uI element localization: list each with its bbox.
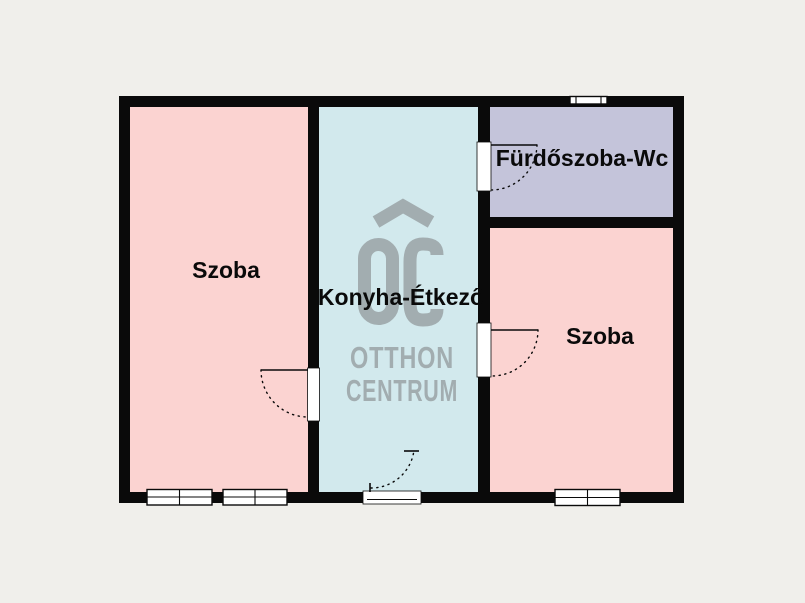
door-opening — [363, 491, 421, 504]
room-left-fill — [119, 96, 319, 503]
door-opening — [477, 323, 491, 377]
watermark-line1: OTTHON — [350, 340, 454, 375]
floorplan: OC OTTHON CENTRUM — [0, 0, 805, 603]
room-label-left-szoba: Szoba — [192, 257, 260, 283]
watermark-line2: CENTRUM — [346, 373, 458, 408]
window-left-2 — [223, 490, 287, 506]
room-label-kitchen: Konyha-Étkező — [318, 283, 484, 310]
wall-left — [119, 96, 130, 503]
window-bathroom — [570, 97, 607, 105]
wall-right — [673, 96, 684, 503]
floorplan-page: OC OTTHON CENTRUM — [0, 0, 805, 603]
window-left-1 — [147, 490, 212, 506]
room-label-bathroom: Fürdőszoba-Wc — [496, 145, 669, 171]
window-right-room — [555, 490, 620, 506]
door-opening — [477, 142, 491, 191]
door-opening — [308, 368, 320, 421]
wall-bathroom-bottom — [478, 217, 684, 228]
room-label-right-szoba: Szoba — [566, 323, 634, 349]
room-right-fill — [490, 228, 684, 503]
